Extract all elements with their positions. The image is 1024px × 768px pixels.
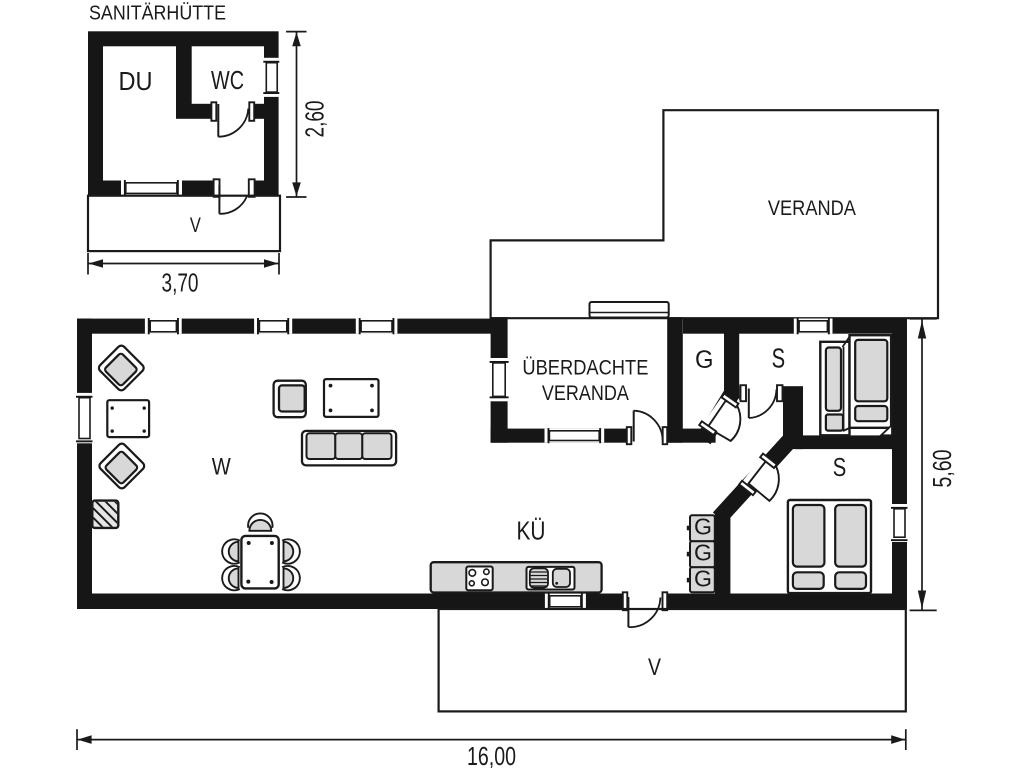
svg-text:5,60: 5,60	[927, 450, 957, 488]
svg-text:S: S	[833, 454, 847, 482]
svg-text:G: G	[695, 346, 714, 374]
svg-text:16,00: 16,00	[467, 741, 516, 768]
svg-text:V: V	[190, 214, 201, 237]
svg-text:S: S	[772, 343, 786, 374]
svg-text:ÜBERDACHTE: ÜBERDACHTE	[522, 356, 648, 379]
svg-text:2,60: 2,60	[300, 101, 330, 138]
svg-text:DU: DU	[119, 66, 153, 96]
svg-text:KÜ: KÜ	[517, 518, 546, 546]
svg-text:VERANDA: VERANDA	[768, 195, 856, 220]
svg-text:WC: WC	[211, 65, 244, 95]
svg-text:W: W	[212, 454, 231, 481]
svg-text:3,70: 3,70	[162, 268, 199, 298]
svg-text:G: G	[694, 540, 712, 566]
svg-text:V: V	[648, 654, 661, 681]
svg-text:VERANDA: VERANDA	[542, 382, 629, 405]
svg-text:G: G	[694, 514, 712, 540]
svg-text:SANITÄRHÜTTE: SANITÄRHÜTTE	[89, 2, 226, 25]
svg-text:G: G	[694, 566, 712, 592]
